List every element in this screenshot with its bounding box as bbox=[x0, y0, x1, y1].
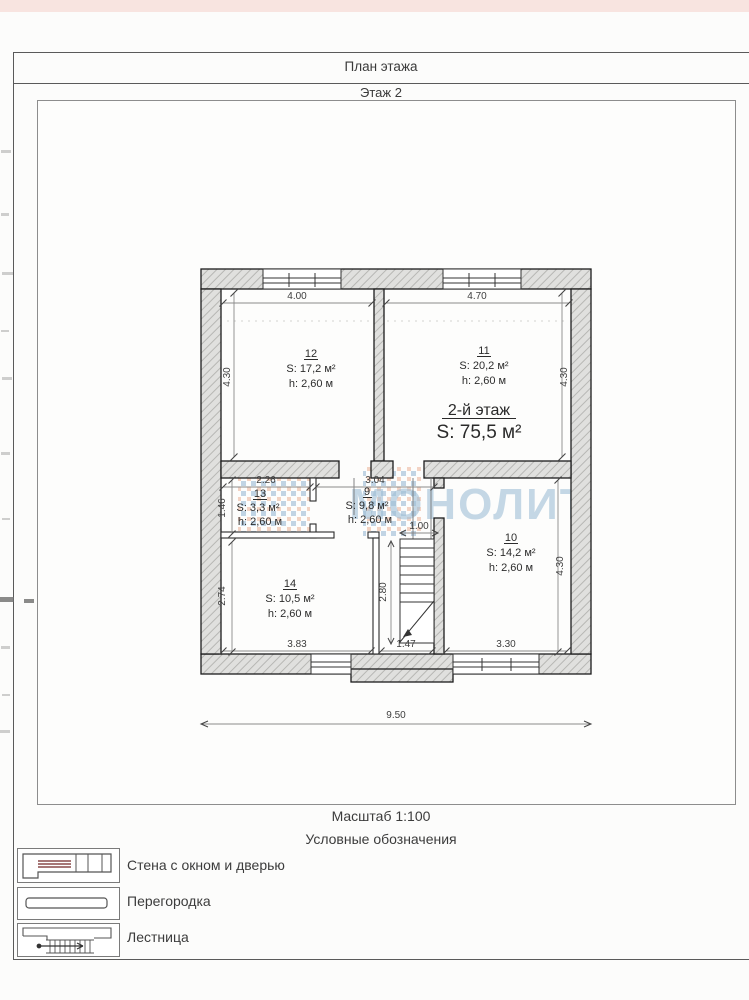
room-14-label: 14 S: 10,5 м² h: 2,60 м bbox=[265, 578, 314, 620]
legend-title: Условные обозначения bbox=[13, 831, 749, 847]
scale-label: Масштаб 1:100 bbox=[13, 808, 749, 824]
room-11-area: S: 20,2 м² bbox=[459, 360, 508, 372]
room-9-area: S: 9,8 м² bbox=[345, 500, 388, 512]
plan-border-box: МОНОЛИТ bbox=[37, 100, 736, 805]
room-9-number: 9 bbox=[364, 486, 370, 498]
floor-plan-drawing: МОНОЛИТ bbox=[38, 101, 735, 804]
legend-partition-symbol bbox=[17, 887, 120, 920]
legend-partition-label: Перегородка bbox=[127, 893, 211, 909]
room-11-height: h: 2,60 м bbox=[462, 375, 506, 387]
room-11-label: 11 S: 20,2 м² h: 2,60 м bbox=[459, 345, 508, 387]
dim-overall-width: 9.50 bbox=[386, 710, 406, 721]
dim-bottom-left: 3.83 bbox=[287, 639, 307, 650]
room-13-number: 13 bbox=[254, 488, 266, 500]
dim-bottom-mid: 1.47 bbox=[396, 639, 416, 650]
dim-left-upper: 4.30 bbox=[222, 367, 233, 387]
legend-wall-window-door-label: Стена с окном и дверью bbox=[127, 857, 285, 873]
dim-stair-length: 2.80 bbox=[378, 582, 389, 602]
room-14-number: 14 bbox=[284, 578, 296, 590]
room-12-height: h: 2,60 м bbox=[289, 378, 333, 390]
dim-top-left: 4.00 bbox=[287, 291, 307, 302]
dim-bottom-right: 3.30 bbox=[496, 639, 516, 650]
scan-noise-mark bbox=[1, 213, 9, 216]
page-title: План этажа bbox=[13, 59, 749, 74]
room-10-area: S: 14,2 м² bbox=[486, 547, 535, 559]
floor-label: 2-й этаж bbox=[448, 402, 510, 419]
dim-right-upper: 4.30 bbox=[559, 367, 570, 387]
room-12-number: 12 bbox=[305, 348, 317, 360]
dimension-arrowheads bbox=[201, 530, 591, 727]
room-10-number: 10 bbox=[505, 532, 517, 544]
scan-noise-mark bbox=[1, 330, 9, 332]
legend-wall-window-door-symbol bbox=[17, 848, 120, 883]
floor-total-label: 2-й этаж S: 75,5 м² bbox=[437, 402, 522, 443]
room-13-area: S: 3,3 м² bbox=[236, 502, 279, 514]
dim-top-right: 4.70 bbox=[467, 291, 487, 302]
scan-noise-mark bbox=[1, 646, 10, 649]
legend-stairs-symbol bbox=[17, 923, 120, 957]
frame-top-line bbox=[13, 52, 749, 53]
scan-noise-mark bbox=[1, 452, 10, 455]
dim-hall-width: 3.04 bbox=[365, 475, 385, 486]
frame-bottom-line bbox=[13, 959, 749, 960]
room-10-height: h: 2,60 м bbox=[489, 562, 533, 574]
scanned-floor-plan-page: План этажа Этаж 2 МОНОЛИТ bbox=[0, 0, 749, 1000]
scan-noise-mark bbox=[2, 694, 10, 696]
scan-noise-mark bbox=[2, 377, 12, 380]
room-12-label: 12 S: 17,2 м² h: 2,60 м bbox=[286, 348, 335, 390]
dim-room14-height: 2.74 bbox=[217, 586, 228, 606]
floor-total-area: S: 75,5 м² bbox=[437, 422, 522, 443]
scan-noise-mark bbox=[24, 599, 34, 603]
dim-room13-height: 1.46 bbox=[217, 498, 228, 518]
room-10-label: 10 S: 14,2 м² h: 2,60 м bbox=[486, 532, 535, 574]
scan-noise-mark bbox=[0, 597, 14, 602]
room-14-height: h: 2,60 м bbox=[268, 608, 312, 620]
floor-subtitle: Этаж 2 bbox=[13, 85, 749, 100]
room-13-height: h: 2,60 м bbox=[238, 516, 282, 528]
scan-noise-mark bbox=[1, 150, 11, 153]
scan-edge-strip bbox=[0, 0, 749, 12]
dim-stair-width: 1.00 bbox=[409, 521, 429, 532]
scan-noise-mark bbox=[2, 518, 10, 520]
dim-room13-width: 2.26 bbox=[256, 475, 276, 486]
legend-stairs-label: Лестница bbox=[127, 929, 189, 945]
dim-right-lower: 4.30 bbox=[555, 556, 566, 576]
staircase bbox=[400, 539, 434, 643]
scan-noise-mark bbox=[0, 730, 10, 733]
room-14-area: S: 10,5 м² bbox=[265, 593, 314, 605]
frame-title-divider bbox=[13, 83, 749, 84]
room-12-area: S: 17,2 м² bbox=[286, 363, 335, 375]
scan-noise-mark bbox=[2, 272, 13, 275]
room-9-height: h: 2,60 м bbox=[348, 514, 392, 526]
room-11-number: 11 bbox=[478, 345, 489, 357]
